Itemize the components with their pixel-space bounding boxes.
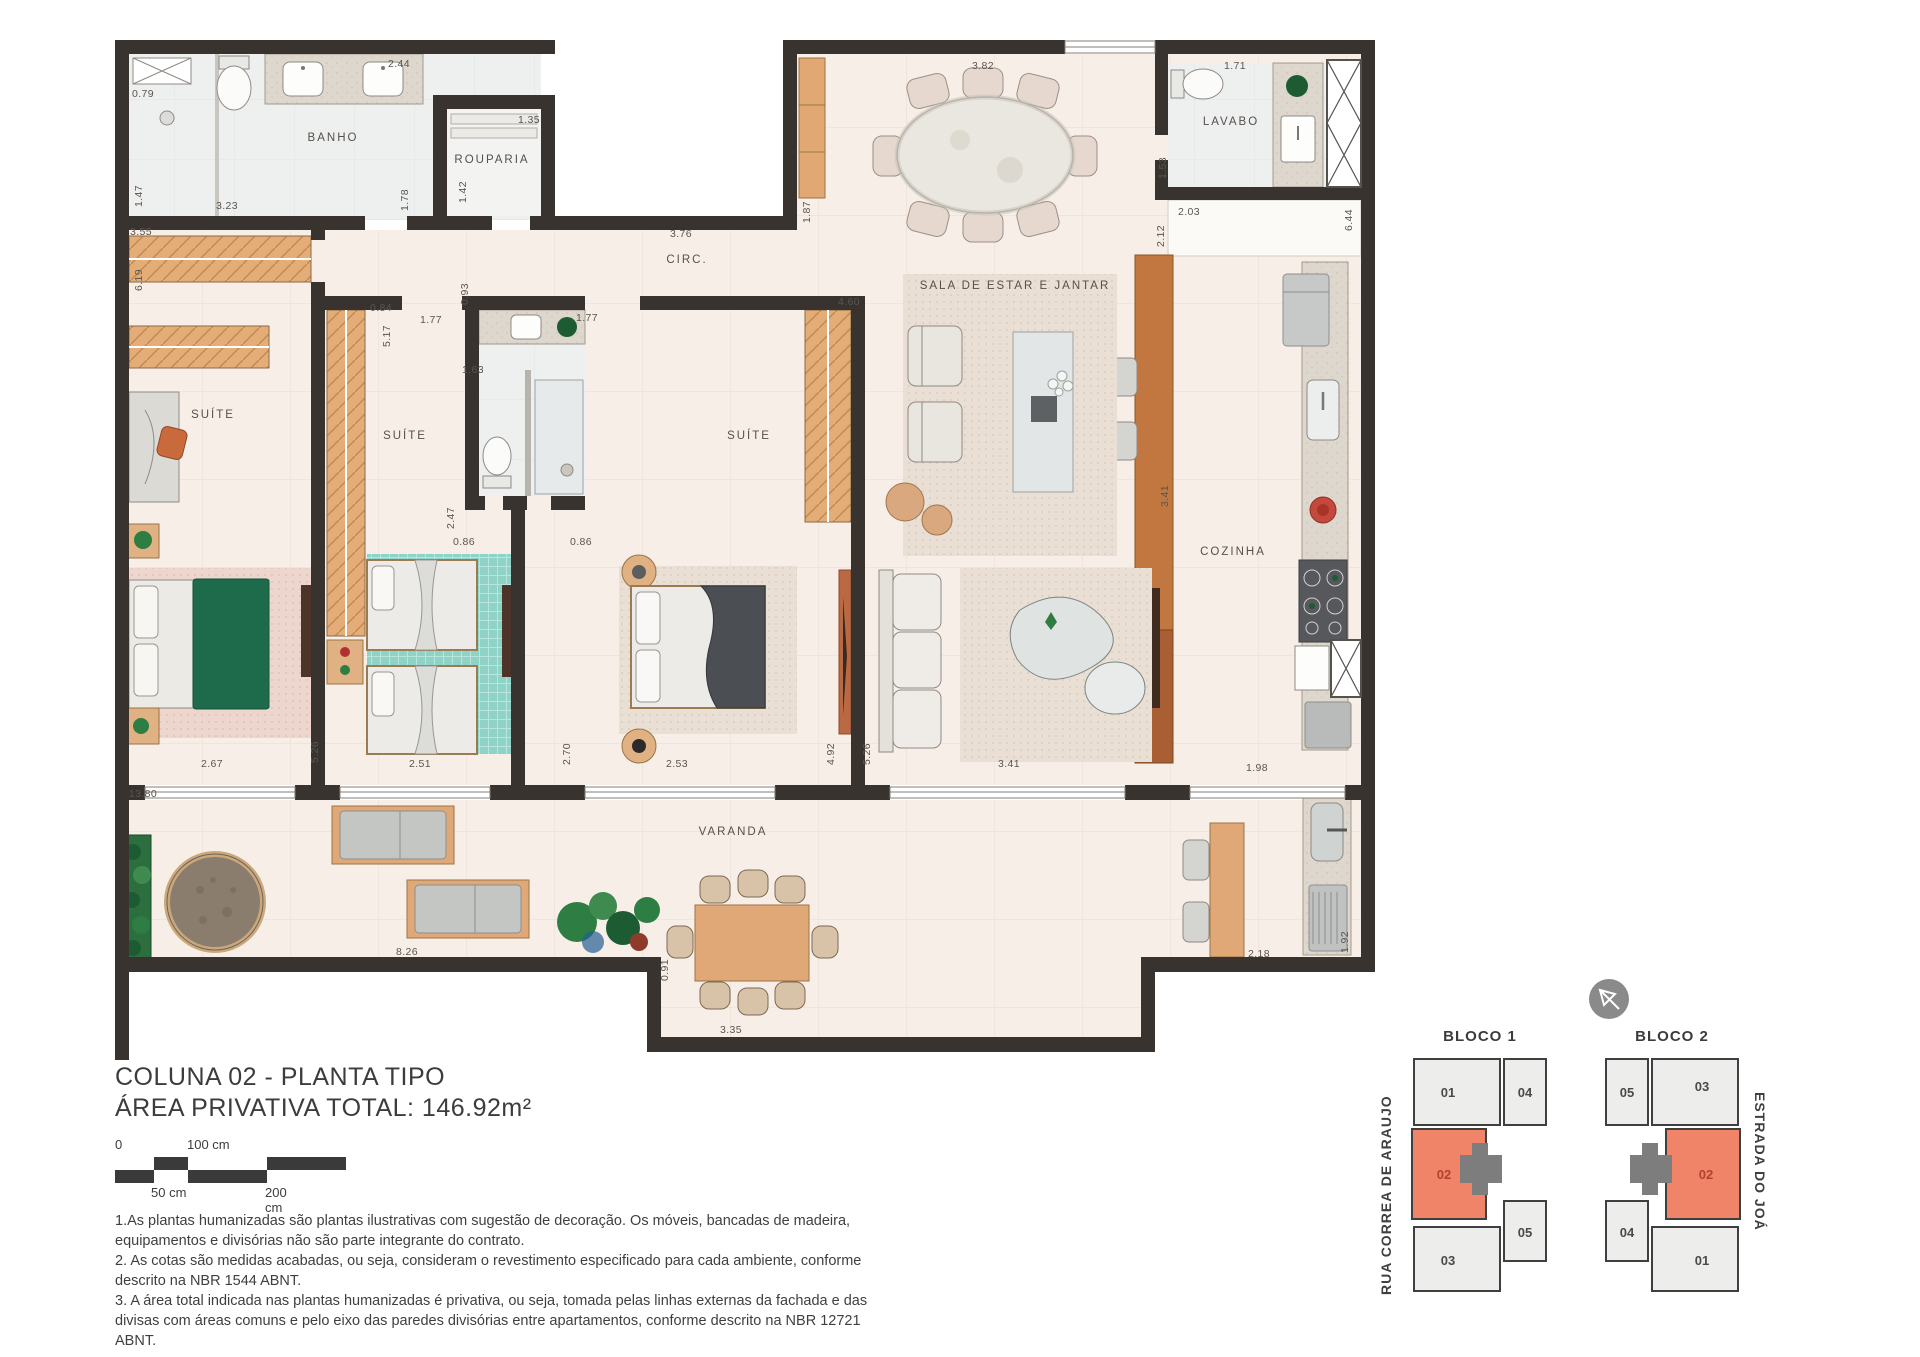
scale-zero: 0: [115, 1137, 122, 1152]
bloco2-unit-04: 04: [1620, 1225, 1635, 1240]
scale-200: 200 cm: [265, 1185, 295, 1215]
street-label-right: ESTRADA DO JOÁ: [1752, 1092, 1768, 1277]
scale-segment: [267, 1157, 346, 1170]
note-2: 2. As cotas são medidas acabadas, ou sej…: [115, 1251, 895, 1291]
scale-segment: [115, 1170, 154, 1183]
bloco2-title: BLOCO 2: [1602, 1028, 1742, 1045]
street-label-left: RUA CORREA DE ARAUJO: [1378, 1050, 1394, 1295]
bloco1-unit-04: 04: [1518, 1085, 1533, 1100]
bloco1-map: 01 04 02 05 03: [1410, 1051, 1550, 1296]
plan-title: COLUNA 02 - PLANTA TIPO: [115, 1063, 915, 1092]
bloco1-title: BLOCO 1: [1410, 1028, 1550, 1045]
floorplan-page: { "title_block": { "line1": "COLUNA 02 -…: [0, 0, 1920, 1357]
bloco2-unit-05: 05: [1620, 1085, 1634, 1100]
keyplan-bloco2: BLOCO 2 05 03 02 04 01: [1602, 1028, 1742, 1301]
floor-plan: BANHOROUPARIACIRC.SALA DE ESTAR E JANTAR…: [115, 40, 1395, 1060]
scale-segment: [188, 1170, 267, 1183]
bloco2-unit-02-highlighted: 02: [1699, 1167, 1713, 1182]
bloco2-map: 05 03 02 04 01: [1602, 1051, 1742, 1296]
bloco2-unit-03: 03: [1695, 1079, 1709, 1094]
scale-bar: 0 100 cm 50 cm 200 cm: [115, 1137, 295, 1195]
bloco1-unit-03: 03: [1441, 1253, 1455, 1268]
compass-icon: [1588, 978, 1630, 1020]
note-3: 3. A área total indicada nas plantas hum…: [115, 1291, 895, 1351]
plan-area-total: ÁREA PRIVATIVA TOTAL: 146.92m²: [115, 1094, 915, 1123]
scale-50: 50 cm: [151, 1185, 186, 1200]
title-block: COLUNA 02 - PLANTA TIPO ÁREA PRIVATIVA T…: [115, 1063, 915, 1351]
note-1: 1.As plantas humanizadas são plantas ilu…: [115, 1211, 895, 1251]
bloco1-unit-02-highlighted: 02: [1437, 1167, 1451, 1182]
scale-segment: [154, 1157, 188, 1170]
keyplan-bloco1: BLOCO 1 01 04 02 05 03: [1410, 1028, 1550, 1301]
legal-notes: 1.As plantas humanizadas são plantas ilu…: [115, 1211, 895, 1351]
scale-100: 100 cm: [187, 1137, 230, 1152]
floor-plan-drawing: [115, 40, 1395, 1060]
bloco1-unit-05: 05: [1518, 1225, 1532, 1240]
bloco1-unit-01: 01: [1441, 1085, 1455, 1100]
bloco2-unit-01: 01: [1695, 1253, 1709, 1268]
